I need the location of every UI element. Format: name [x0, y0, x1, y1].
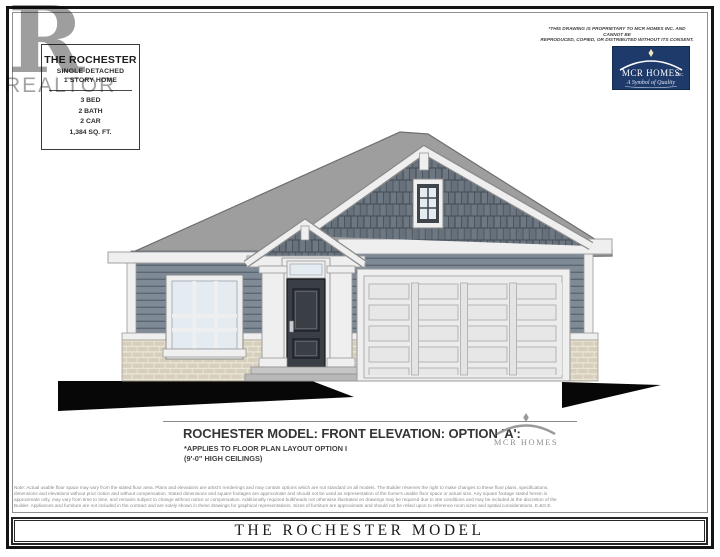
spec-sqft: 1,384 SQ. FT. [42, 128, 139, 139]
footer-inner-border: THE ROCHESTER MODEL [14, 520, 705, 542]
porch [245, 258, 367, 381]
proprietary-notice: *THIS DRAWING IS PROPRIETARY TO MCR HOME… [540, 26, 694, 43]
logo-suffix: INC. [676, 72, 684, 77]
logo-tagline: A Symbol of Quality [626, 79, 676, 86]
spec-beds: 3 BED [42, 96, 139, 107]
spec-baths: 2 BATH [42, 107, 139, 118]
footer-title: THE ROCHESTER MODEL [235, 522, 485, 540]
model-subtitle-2: 1 STORY HOME [42, 77, 139, 84]
mcr-homes-logo-graphic: MCR HOMES INC. A Symbol of Quality [613, 47, 689, 89]
model-info-box: THE ROCHESTER SINGLE DETACHED 1 STORY HO… [41, 44, 140, 150]
flourish-line [625, 87, 677, 88]
proprietary-line-2: REPRODUCED, COPIED, OR DISTRIBUTED WITHO… [540, 37, 694, 43]
footer-title-bar: THE ROCHESTER MODEL [11, 517, 708, 545]
info-divider [49, 90, 132, 91]
gable-window-icon [413, 179, 443, 228]
front-door [287, 279, 325, 367]
star-icon [649, 49, 654, 57]
mcr-homes-logo: MCR HOMES INC. A Symbol of Quality [612, 46, 690, 90]
driveway-shadow [58, 381, 661, 411]
door-handle-icon [290, 321, 294, 332]
transom-window-icon [287, 261, 325, 278]
disclaimer-line-4: Builder. Appliances and furniture are no… [14, 503, 654, 509]
spec-cars: 2 CAR [42, 117, 139, 128]
model-subtitle-1: SINGLE DETACHED [42, 68, 139, 75]
proprietary-line-1: *THIS DRAWING IS PROPRIETARY TO MCR HOME… [540, 26, 694, 37]
drawing-sheet: THE ROCHESTER SINGLE DETACHED 1 STORY HO… [0, 0, 720, 557]
disclaimer-block: Note: Actual usable floor space may vary… [14, 485, 654, 509]
logo-name: MCR HOMES [622, 68, 680, 78]
front-window [163, 275, 246, 359]
porch-steps [245, 367, 367, 381]
garage-door [357, 269, 570, 381]
model-title: THE ROCHESTER [42, 54, 139, 66]
